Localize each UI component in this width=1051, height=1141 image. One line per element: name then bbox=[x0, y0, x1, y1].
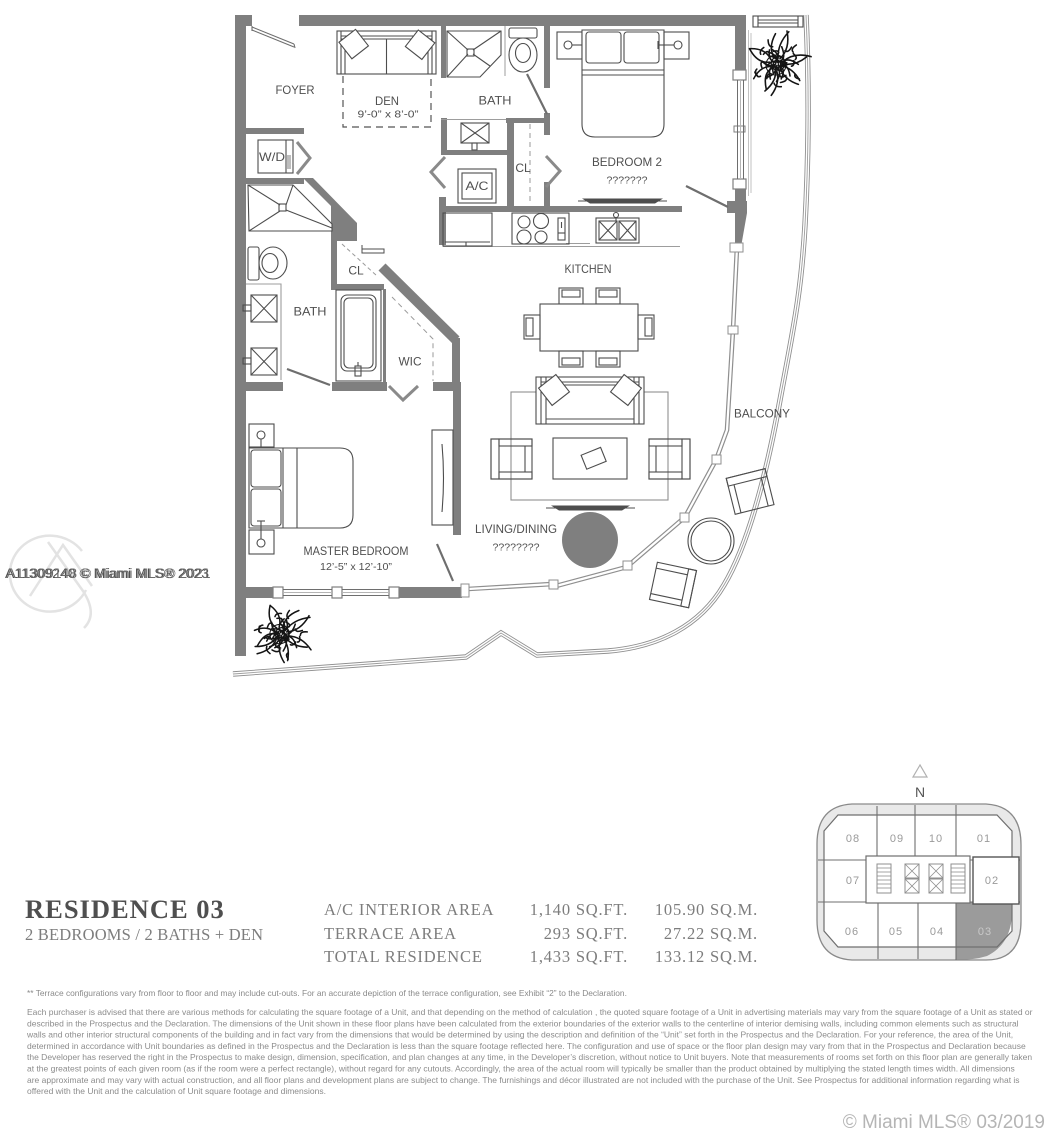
svg-text:05: 05 bbox=[889, 926, 903, 938]
svg-text:are approximate and may vary w: are approximate and may vary with actual… bbox=[27, 1075, 1020, 1085]
svg-text:04: 04 bbox=[930, 926, 944, 938]
svg-text:BEDROOM 2: BEDROOM 2 bbox=[592, 155, 662, 169]
svg-text:FOYER: FOYER bbox=[276, 83, 315, 97]
svg-text:determined in accordance with: determined in accordance with Unit bound… bbox=[27, 1041, 1026, 1051]
svg-text:01: 01 bbox=[977, 833, 991, 845]
svg-text:2 BEDROOMS / 2 BATHS + DEN: 2 BEDROOMS / 2 BATHS + DEN bbox=[25, 925, 263, 944]
svg-text:CL: CL bbox=[348, 264, 364, 278]
svg-text:** Terrace configurations vary: ** Terrace configurations vary from floo… bbox=[27, 988, 627, 998]
svg-text:105.90 SQ.M.: 105.90 SQ.M. bbox=[655, 900, 758, 919]
svg-text:BATH: BATH bbox=[294, 305, 327, 319]
svg-text:10: 10 bbox=[929, 833, 943, 845]
svg-text:LIVING/DINING: LIVING/DINING bbox=[475, 522, 557, 536]
svg-text:09: 09 bbox=[890, 833, 904, 845]
svg-text:described in the Prospectus an: described in the Prospectus and the Decl… bbox=[27, 1018, 1019, 1028]
svg-text:08: 08 bbox=[846, 833, 860, 845]
svg-text:W/D: W/D bbox=[259, 150, 285, 164]
svg-text:1,433 SQ.FT.: 1,433 SQ.FT. bbox=[530, 947, 628, 966]
svg-text:A11309148 © Miami MLS® 2021: A11309148 © Miami MLS® 2021 bbox=[7, 565, 211, 581]
svg-text:offered with the Unit and the: offered with the Unit and the calculatio… bbox=[27, 1086, 326, 1096]
svg-text:at the greatest points of each: at the greatest points of each given roo… bbox=[27, 1064, 1015, 1074]
svg-text:RESIDENCE 03: RESIDENCE 03 bbox=[25, 894, 225, 924]
svg-text:MASTER BEDROOM: MASTER BEDROOM bbox=[304, 544, 409, 558]
svg-text:133.12 SQ.M.: 133.12 SQ.M. bbox=[655, 947, 758, 966]
svg-text:TOTAL RESIDENCE: TOTAL RESIDENCE bbox=[324, 947, 483, 966]
svg-text:KITCHEN: KITCHEN bbox=[565, 262, 612, 276]
svg-text:BATH: BATH bbox=[479, 94, 512, 108]
svg-text:N: N bbox=[915, 784, 925, 800]
svg-text:03: 03 bbox=[978, 926, 992, 938]
svg-text:???????: ??????? bbox=[607, 175, 648, 187]
svg-text:27.22 SQ.M.: 27.22 SQ.M. bbox=[664, 924, 758, 943]
svg-text:293 SQ.FT.: 293 SQ.FT. bbox=[544, 924, 628, 943]
svg-text:TERRACE AREA: TERRACE AREA bbox=[324, 924, 457, 943]
svg-text:A/C: A/C bbox=[466, 179, 489, 193]
svg-text:© Miami MLS® 03/2019: © Miami MLS® 03/2019 bbox=[843, 1112, 1045, 1133]
svg-text:????????: ???????? bbox=[493, 542, 540, 554]
svg-text:walls and other interior struc: walls and other interior structural comp… bbox=[26, 1030, 1013, 1040]
svg-text:9’-0” x 8’-0”: 9’-0” x 8’-0” bbox=[358, 109, 420, 121]
svg-text:WIC: WIC bbox=[399, 355, 422, 369]
svg-text:06: 06 bbox=[845, 926, 859, 938]
svg-text:07: 07 bbox=[846, 875, 860, 887]
svg-text:the Developer has reserved the: the Developer has reserved the right in … bbox=[27, 1052, 1032, 1062]
svg-text:DEN: DEN bbox=[375, 94, 399, 108]
svg-text:CL: CL bbox=[515, 161, 531, 175]
svg-text:A/C INTERIOR AREA: A/C INTERIOR AREA bbox=[324, 900, 494, 919]
svg-text:BALCONY: BALCONY bbox=[734, 407, 790, 421]
svg-text:Each purchaser is advised that: Each purchaser is advised that there are… bbox=[27, 1007, 1033, 1017]
svg-text:02: 02 bbox=[985, 875, 999, 887]
svg-text:12’-5” x 12’-10”: 12’-5” x 12’-10” bbox=[320, 561, 393, 573]
svg-text:1,140 SQ.FT.: 1,140 SQ.FT. bbox=[530, 900, 628, 919]
